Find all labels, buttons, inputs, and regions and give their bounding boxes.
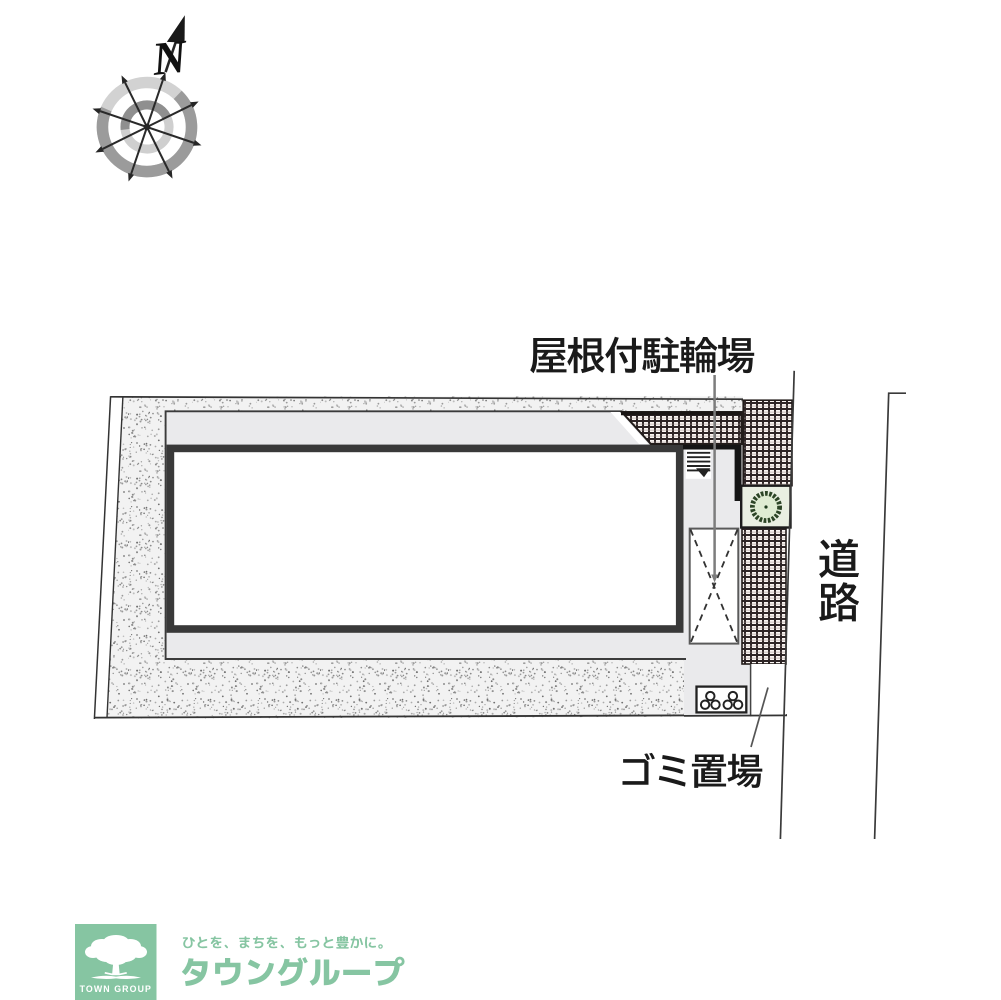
svg-text:TOWN GROUP: TOWN GROUP xyxy=(80,984,152,994)
